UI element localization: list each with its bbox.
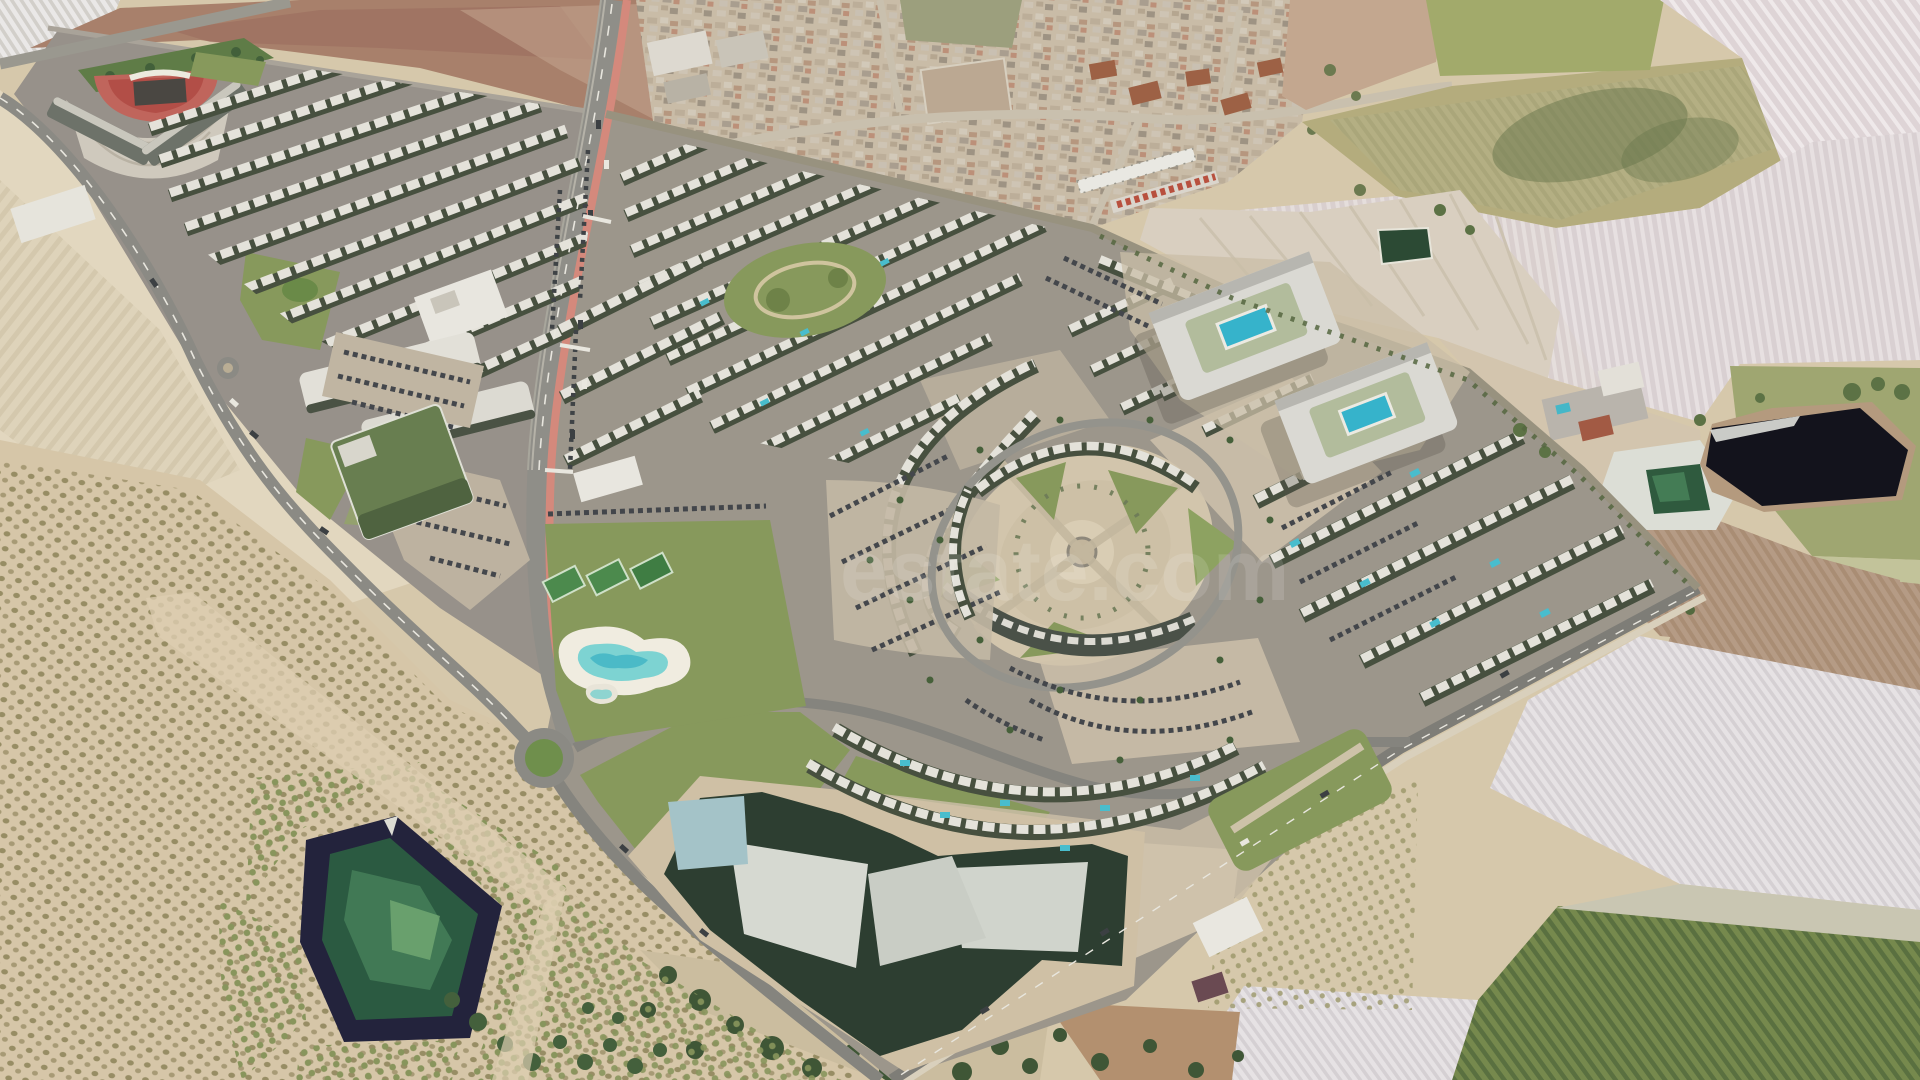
svg-text:estate.com: estate.com [840, 523, 1289, 619]
